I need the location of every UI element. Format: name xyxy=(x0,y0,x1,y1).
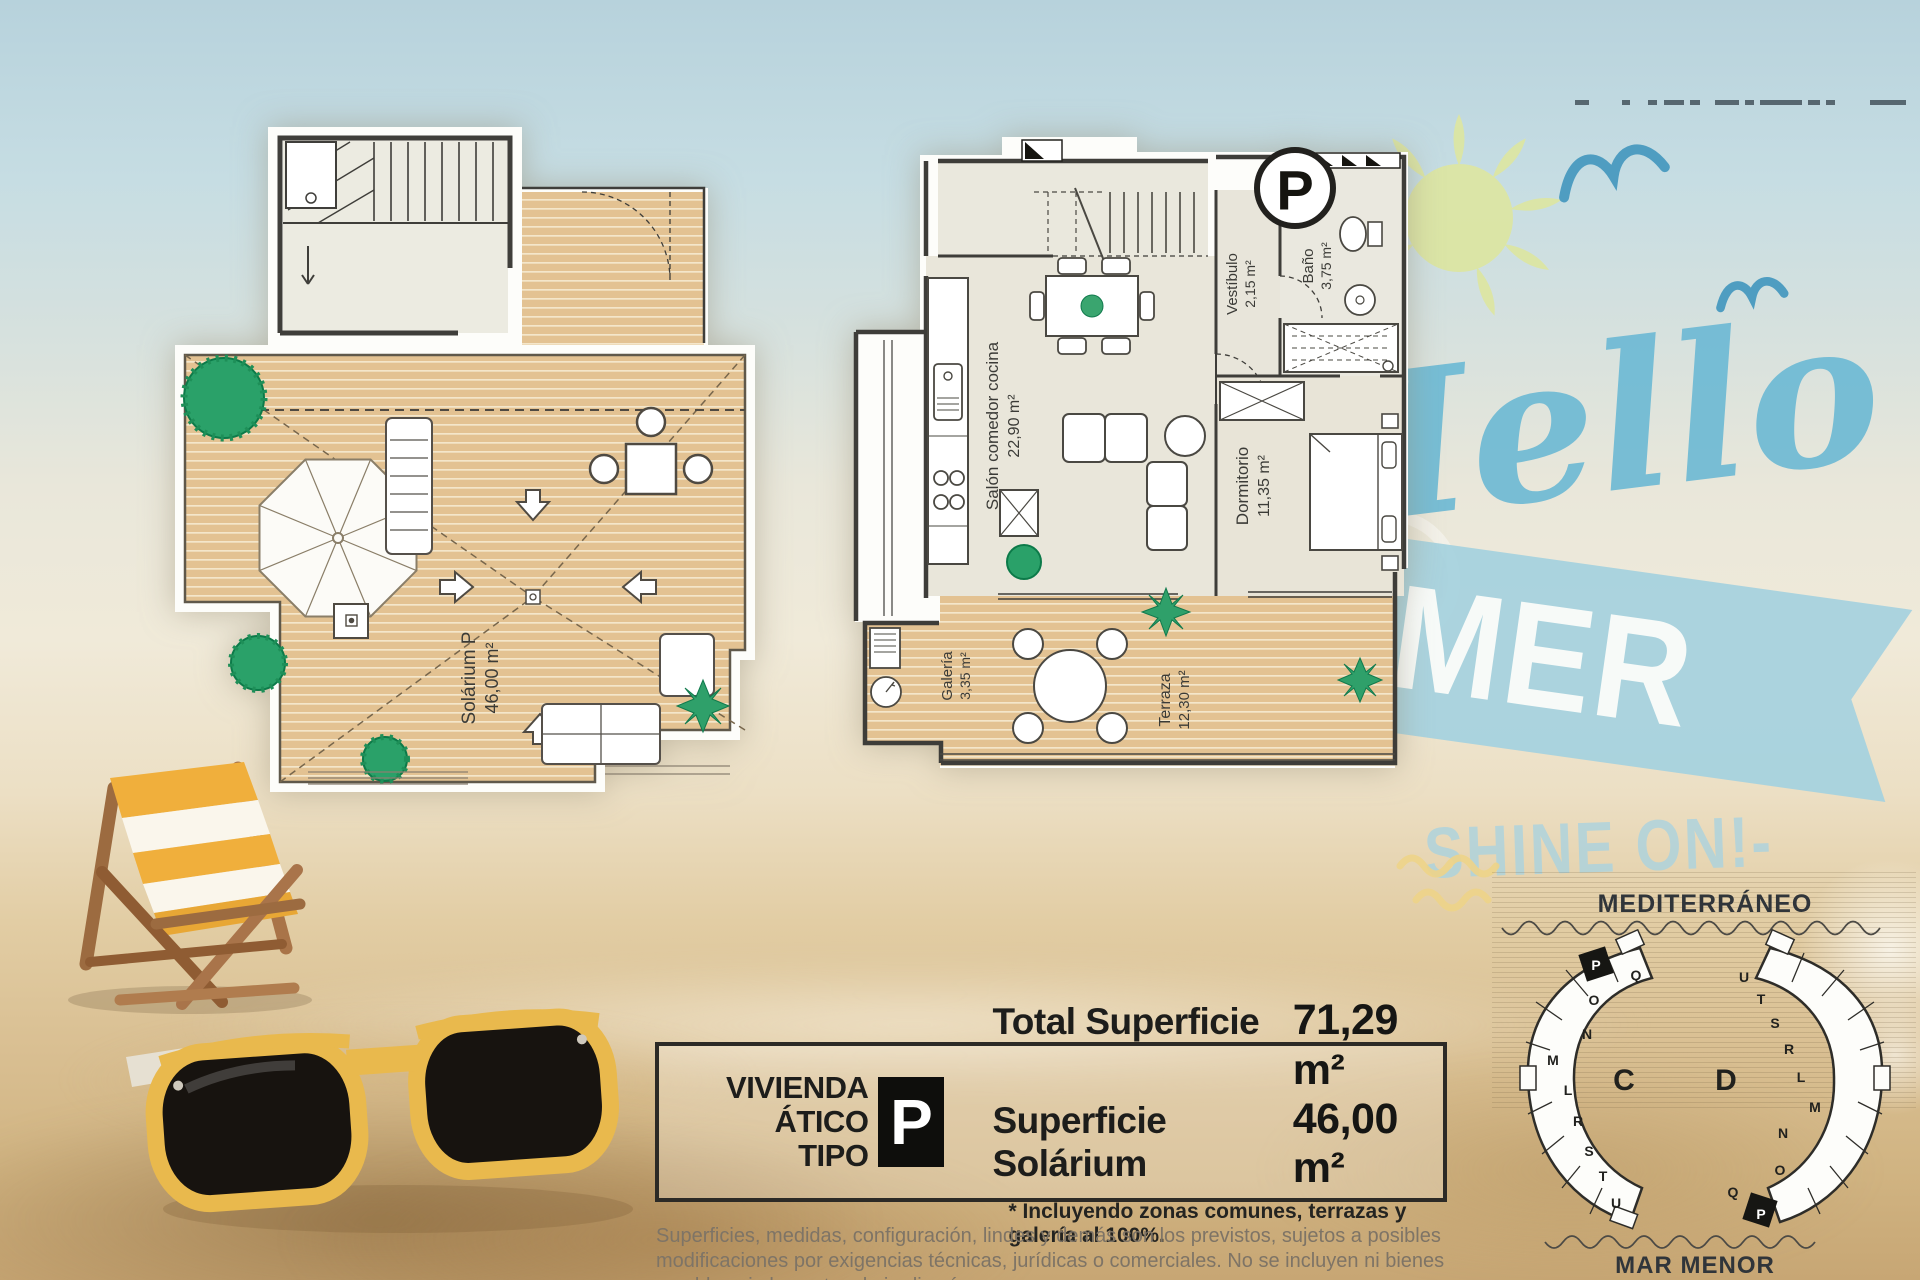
deck-chair-photo xyxy=(62,752,342,1014)
svg-text:M: M xyxy=(1809,1099,1821,1115)
deck-drain-box xyxy=(334,604,368,638)
svg-text:L: L xyxy=(1564,1082,1573,1098)
svg-text:Salón comedor cocina: Salón comedor cocina xyxy=(983,341,1002,510)
solarium-surface-row: Superficie Solárium 46,00 m² xyxy=(992,1095,1443,1194)
sunglasses-photo xyxy=(118,995,658,1245)
svg-text:Dormitorio: Dormitorio xyxy=(1233,447,1252,525)
type-badge: P xyxy=(1257,150,1333,226)
dwelling-type-title: VIVIENDA ÁTICO TIPO xyxy=(723,1071,868,1173)
svg-text:12,30 m²: 12,30 m² xyxy=(1176,670,1193,729)
surface-figures: Total Superficie 71,29 m² Superficie Sol… xyxy=(992,996,1443,1248)
waterline-icon xyxy=(1502,922,1880,935)
sea-bottom-label: MAR MENOR xyxy=(1615,1252,1775,1279)
title-line-1: VIVIENDA xyxy=(723,1071,868,1105)
waterline-icon xyxy=(1545,1236,1815,1248)
solarium-surface-value: 46,00 m² xyxy=(1293,1095,1443,1194)
cropped-text-dashes xyxy=(1575,100,1906,105)
svg-text:R: R xyxy=(1784,1041,1794,1057)
building-block-d xyxy=(1742,930,1890,1228)
total-surface-value: 71,29 m² xyxy=(1293,996,1443,1095)
svg-text:T: T xyxy=(1599,1168,1608,1184)
type-letter-badge: P xyxy=(878,1077,944,1167)
svg-text:Q: Q xyxy=(1728,1184,1739,1200)
legal-disclaimer: Superficies, medidas, configuración, lin… xyxy=(656,1224,1486,1280)
kitchen xyxy=(928,278,968,564)
block-d-label: D xyxy=(1715,1064,1737,1097)
site-location-map: MEDITERRÁNEO P Q O N M L xyxy=(1490,870,1920,1280)
svg-text:11,35 m²: 11,35 m² xyxy=(1256,454,1273,517)
svg-text:U: U xyxy=(1611,1195,1621,1211)
title-line-2: ÁTICO TIPO xyxy=(723,1105,868,1173)
svg-text:O: O xyxy=(1589,992,1600,1008)
landing-floor xyxy=(522,192,704,345)
sun-lounger xyxy=(386,418,432,554)
star-plant-icon xyxy=(1142,588,1190,636)
svg-text:L: L xyxy=(1797,1069,1806,1085)
svg-text:S: S xyxy=(1584,1143,1593,1159)
svg-text:Q: Q xyxy=(1631,967,1642,983)
svg-text:P: P xyxy=(1756,1206,1765,1222)
seagull-icon xyxy=(1559,146,1785,308)
table-plant-icon xyxy=(1081,295,1103,317)
svg-text:T: T xyxy=(1757,991,1766,1007)
svg-text:O: O xyxy=(1775,1162,1786,1178)
svg-text:Terraza: Terraza xyxy=(1157,673,1174,726)
total-surface-label: Total Superficie xyxy=(992,1001,1292,1044)
svg-text:Galería: Galería xyxy=(939,651,956,701)
stairs-floor xyxy=(938,161,1208,256)
apartment-floorplan: P Salón comedor cocina 22,90 m² Dormitor… xyxy=(848,126,1420,818)
plant-icon xyxy=(1007,545,1041,579)
sea-top-label: MEDITERRÁNEO xyxy=(1598,889,1813,918)
svg-text:2,15 m²: 2,15 m² xyxy=(1242,260,1258,308)
svg-text:U: U xyxy=(1739,969,1749,985)
block-c-label: C xyxy=(1613,1064,1635,1097)
star-plant-icon xyxy=(1338,658,1382,702)
summary-info-box: VIVIENDA ÁTICO TIPO P Total Superficie 7… xyxy=(655,1042,1447,1202)
svg-text:Solárium P: Solárium P xyxy=(459,632,480,725)
solarium-floorplan: Solárium P 46,00 m² xyxy=(158,118,778,830)
svg-text:N: N xyxy=(1582,1026,1592,1042)
svg-text:46,00 m²: 46,00 m² xyxy=(482,642,502,713)
svg-text:P: P xyxy=(1276,159,1313,222)
svg-text:3,75 m²: 3,75 m² xyxy=(1318,242,1334,290)
flyer-canvas: Hello SUMMER SHINE ON!- xyxy=(0,0,1920,1280)
svg-text:N: N xyxy=(1778,1125,1788,1141)
total-surface-row: Total Superficie 71,29 m² xyxy=(992,996,1443,1095)
svg-text:P: P xyxy=(1591,957,1600,973)
svg-text:22,90 m²: 22,90 m² xyxy=(1006,394,1023,458)
svg-text:R: R xyxy=(1573,1113,1583,1129)
solarium-surface-label: Superficie Solárium xyxy=(992,1100,1292,1185)
svg-text:3,35 m²: 3,35 m² xyxy=(957,652,973,700)
svg-text:Vestíbulo: Vestíbulo xyxy=(1224,253,1241,315)
svg-text:S: S xyxy=(1770,1015,1779,1031)
galeria-fixtures xyxy=(870,628,901,707)
svg-text:Baño: Baño xyxy=(1300,248,1317,283)
svg-text:M: M xyxy=(1547,1052,1559,1068)
